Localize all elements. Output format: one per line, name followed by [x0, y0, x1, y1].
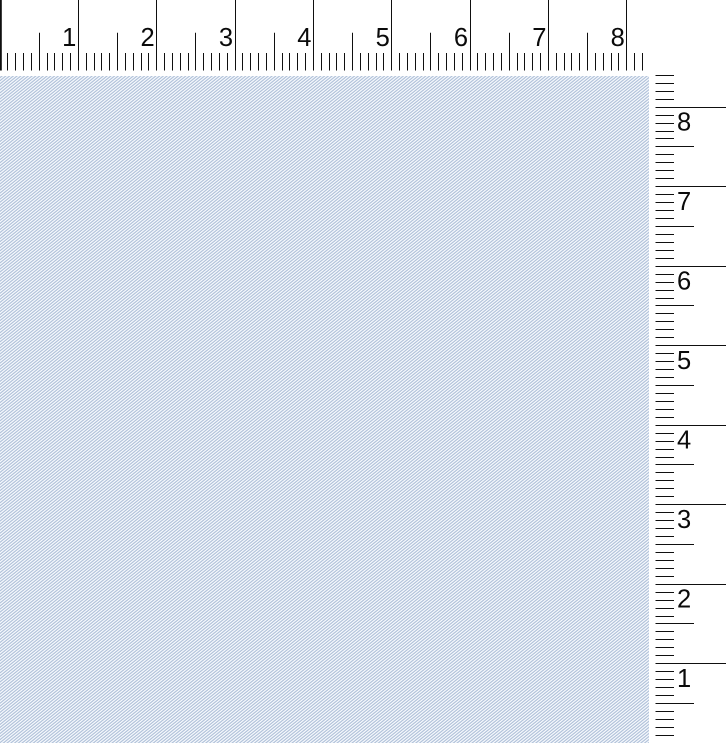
svg-text:2: 2	[677, 586, 691, 614]
svg-text:5: 5	[677, 347, 691, 375]
svg-text:8: 8	[611, 24, 625, 52]
svg-text:7: 7	[677, 188, 691, 216]
svg-text:3: 3	[219, 24, 233, 52]
svg-text:3: 3	[677, 506, 691, 534]
svg-text:4: 4	[297, 24, 311, 52]
svg-text:1: 1	[677, 665, 691, 693]
svg-text:8: 8	[677, 109, 691, 137]
svg-text:4: 4	[677, 427, 691, 455]
svg-text:2: 2	[141, 24, 155, 52]
svg-text:1: 1	[62, 24, 76, 52]
svg-text:5: 5	[376, 24, 390, 52]
svg-text:6: 6	[677, 268, 691, 296]
svg-text:7: 7	[532, 24, 546, 52]
svg-text:6: 6	[454, 24, 468, 52]
